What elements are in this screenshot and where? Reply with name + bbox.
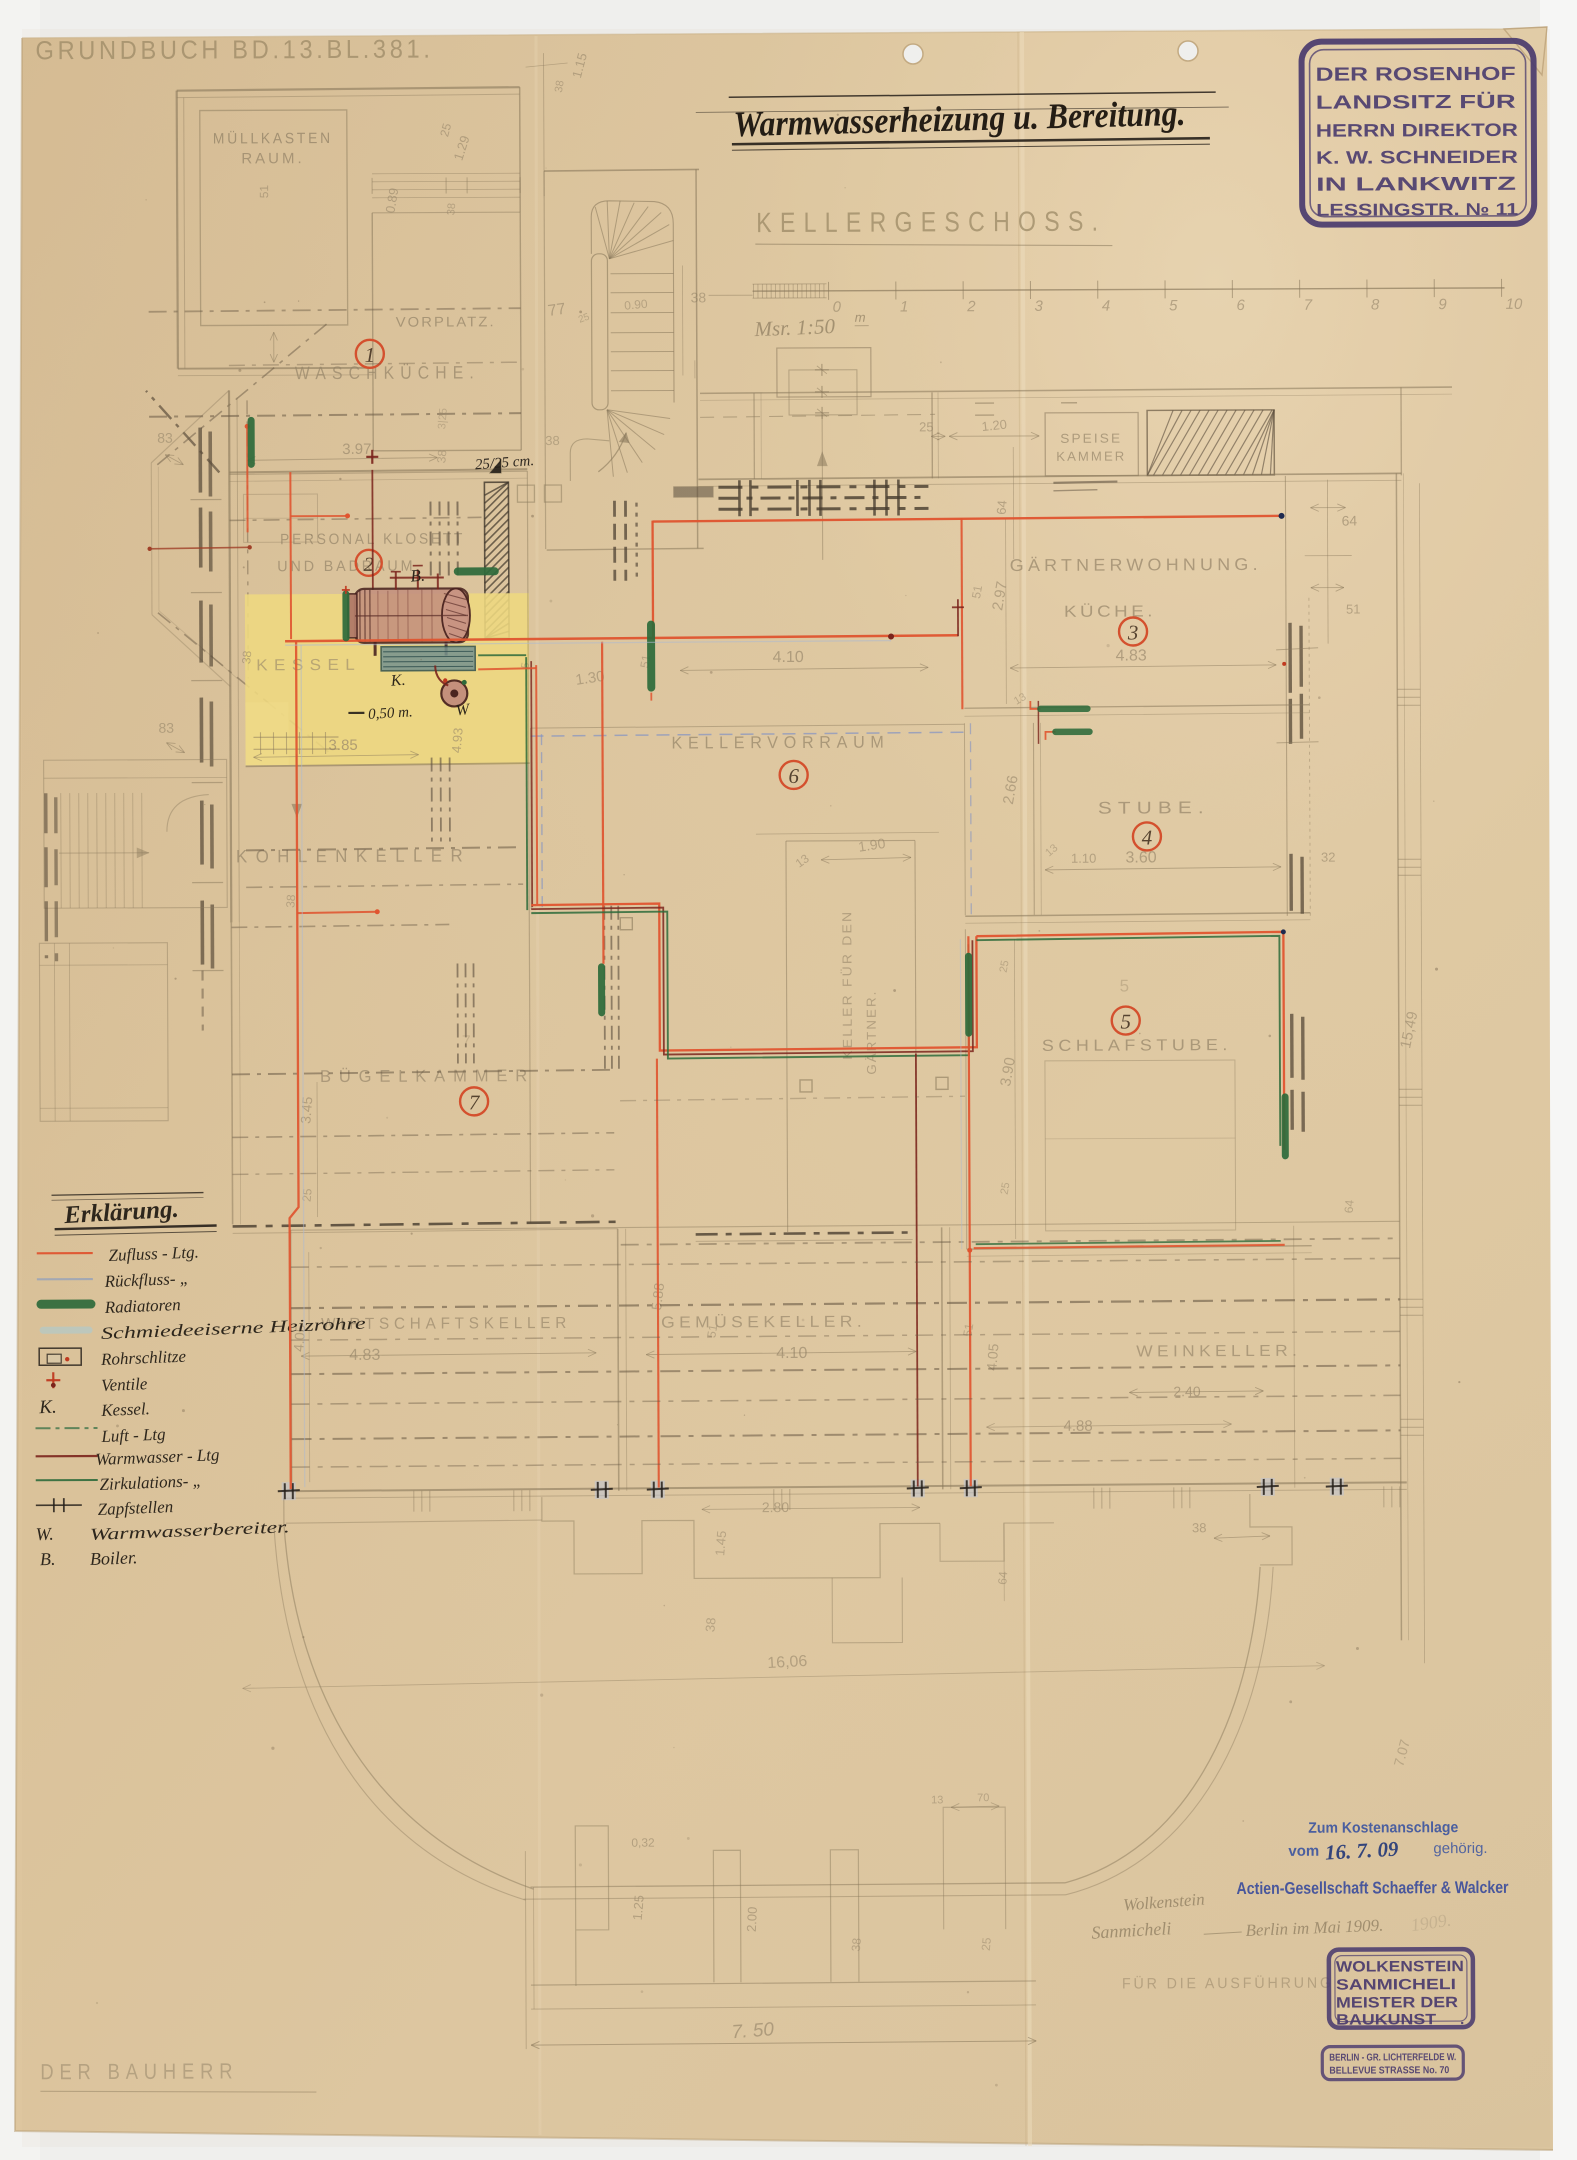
svg-text:0,32: 0,32: [631, 1836, 655, 1850]
svg-text:KAMMER: KAMMER: [1056, 449, 1126, 464]
svg-text:25: 25: [919, 419, 934, 434]
svg-text:16. 7. 09: 16. 7. 09: [1324, 1837, 1399, 1865]
svg-text:Rohrschlitze: Rohrschlitze: [100, 1347, 187, 1369]
svg-text:2.80: 2.80: [762, 1499, 790, 1515]
svg-text:3.85: 3.85: [328, 737, 357, 754]
svg-text:5: 5: [1169, 297, 1178, 314]
svg-text:4: 4: [1102, 298, 1110, 315]
svg-text:MÜLLKASTEN: MÜLLKASTEN: [213, 129, 333, 148]
svg-text:RAUM.: RAUM.: [241, 150, 304, 167]
svg-text:4: 4: [1142, 825, 1153, 849]
svg-text:Zirkulations- „: Zirkulations- „: [99, 1471, 202, 1494]
svg-text:Ventile: Ventile: [101, 1374, 148, 1395]
svg-text:38: 38: [434, 449, 449, 464]
svg-text:vom: vom: [1288, 1843, 1319, 1860]
svg-text:BÜGELKAMMER: BÜGELKAMMER: [320, 1066, 535, 1086]
svg-text:KELLER FÜR DEN: KELLER FÜR DEN: [839, 910, 855, 1060]
svg-text:K. W. SCHNEIDER: K. W. SCHNEIDER: [1316, 147, 1518, 168]
svg-text:51: 51: [1346, 602, 1361, 617]
svg-text:GEMÜSEKELLER.: GEMÜSEKELLER.: [661, 1313, 866, 1332]
svg-text:0,50 m.: 0,50 m.: [368, 704, 413, 723]
svg-text:51: 51: [257, 185, 271, 199]
svg-text:3: 3: [1127, 620, 1139, 644]
svg-text:0.90: 0.90: [624, 297, 649, 313]
svg-text:16,06: 16,06: [767, 1653, 808, 1672]
svg-text:GÄRTNER.: GÄRTNER.: [864, 990, 879, 1075]
svg-text:VORPLATZ.: VORPLATZ.: [396, 313, 496, 329]
svg-text:38: 38: [445, 203, 458, 216]
svg-text:2.00: 2.00: [744, 1906, 760, 1932]
svg-text:2: 2: [966, 298, 976, 315]
svg-text:38: 38: [849, 1937, 864, 1952]
svg-text:GÄRTNERWOHNUNG.: GÄRTNERWOHNUNG.: [1010, 555, 1262, 575]
svg-text:7. 50: 7. 50: [731, 2019, 775, 2043]
svg-text:3.45: 3.45: [297, 1096, 315, 1125]
svg-text:1.45: 1.45: [712, 1530, 729, 1556]
svg-text:38: 38: [702, 1617, 718, 1633]
svg-text:25: 25: [300, 1188, 315, 1203]
svg-text:8: 8: [1371, 296, 1380, 313]
svg-text:B.: B.: [39, 1549, 55, 1570]
svg-text:3.60: 3.60: [1125, 849, 1156, 866]
svg-text:51: 51: [969, 584, 985, 600]
svg-text:LESSINGSTR. № 11: LESSINGSTR. № 11: [1316, 200, 1518, 220]
svg-text:3.97: 3.97: [342, 441, 371, 458]
svg-text:K.: K.: [38, 1397, 57, 1419]
svg-text:BERLIN - GR. LICHTERFELDE W.: BERLIN - GR. LICHTERFELDE W.: [1329, 2052, 1456, 2064]
svg-text:gehörig.: gehörig.: [1433, 1840, 1487, 1857]
svg-text:SCHLAFSTUBE.: SCHLAFSTUBE.: [1042, 1037, 1232, 1055]
svg-text:64: 64: [994, 500, 1010, 516]
svg-text:UND BADRAUM.: UND BADRAUM.: [277, 558, 422, 576]
svg-text:83: 83: [157, 430, 173, 446]
svg-text:KESSEL: KESSEL: [256, 657, 361, 674]
svg-text:38: 38: [239, 650, 254, 665]
svg-text:6: 6: [788, 764, 799, 788]
svg-text:m: m: [855, 310, 866, 325]
svg-text:IN LANKWITZ: IN LANKWITZ: [1316, 174, 1517, 196]
svg-text:10: 10: [1506, 296, 1523, 313]
svg-text:SANMICHELI: SANMICHELI: [1336, 1976, 1456, 1994]
svg-text:38: 38: [691, 289, 707, 305]
svg-text:32: 32: [1321, 850, 1336, 865]
svg-text:K.: K.: [389, 672, 406, 690]
svg-text:WOLKENSTEIN: WOLKENSTEIN: [1336, 1958, 1464, 1976]
svg-text:6: 6: [1236, 297, 1245, 314]
svg-text:Zum Kostenanschlage: Zum Kostenanschlage: [1308, 1819, 1458, 1837]
svg-text:KELLERGESCHOSS.: KELLERGESCHOSS.: [756, 206, 1106, 239]
svg-text:64: 64: [1342, 513, 1358, 529]
svg-text:SPEISE: SPEISE: [1060, 431, 1122, 446]
svg-text:Rückfluss- „: Rückfluss- „: [103, 1269, 189, 1291]
svg-text:25: 25: [999, 1181, 1013, 1195]
svg-text:Zufluss - Ltg.: Zufluss - Ltg.: [108, 1242, 199, 1265]
svg-text:BAUKUNST: BAUKUNST: [1336, 2011, 1436, 2028]
svg-text:Actien-Gesellschaft Schaeffer: Actien-Gesellschaft Schaeffer & Walcker: [1236, 1878, 1508, 1898]
svg-text:Boiler.: Boiler.: [89, 1547, 137, 1569]
svg-text:70: 70: [977, 1792, 989, 1804]
svg-text:64: 64: [995, 1571, 1010, 1586]
svg-text:1.25: 1.25: [630, 1894, 647, 1920]
svg-text:77: 77: [547, 301, 567, 320]
svg-text:64: 64: [1342, 1199, 1357, 1214]
svg-text:1.10: 1.10: [1071, 851, 1096, 866]
svg-text:WEINKELLER.: WEINKELLER.: [1136, 1343, 1301, 1361]
svg-text:Radiatoren: Radiatoren: [103, 1295, 181, 1317]
svg-text:3|25: 3|25: [436, 408, 450, 430]
svg-text:9: 9: [1438, 296, 1447, 313]
svg-text:83: 83: [158, 720, 174, 736]
svg-text:BELLEVUE STRASSE No. 70: BELLEVUE STRASSE No. 70: [1329, 2065, 1449, 2077]
svg-text:Msr. 1:50: Msr. 1:50: [753, 314, 836, 341]
svg-text:4.10: 4.10: [773, 649, 804, 666]
svg-text:38: 38: [545, 433, 560, 448]
svg-text:GRUNDBUCH BD.13.BL.381.: GRUNDBUCH BD.13.BL.381.: [35, 34, 433, 66]
svg-text:STUBE.: STUBE.: [1098, 798, 1210, 817]
svg-text:38: 38: [1192, 1520, 1207, 1535]
svg-text:4.83: 4.83: [1116, 647, 1147, 664]
svg-text:FÜR DIE AUSFÜHRUNG: FÜR DIE AUSFÜHRUNG: [1122, 1974, 1334, 1993]
svg-text:DER BAUHERR: DER BAUHERR: [40, 2058, 238, 2084]
svg-text:25: 25: [998, 959, 1012, 973]
svg-text:5: 5: [1120, 1010, 1131, 1034]
svg-text:MEISTER DER: MEISTER DER: [1336, 1994, 1458, 2012]
svg-text:4.93: 4.93: [449, 727, 466, 753]
svg-text:KELLERVORRAUM: KELLERVORRAUM: [671, 733, 889, 753]
svg-text:KÜCHE.: KÜCHE.: [1064, 602, 1156, 620]
svg-text:Zapfstellen: Zapfstellen: [97, 1497, 173, 1519]
svg-text:WASCHKÜCHE.: WASCHKÜCHE.: [295, 362, 480, 383]
svg-text:38: 38: [553, 79, 567, 93]
svg-text:3: 3: [1034, 298, 1043, 315]
svg-text:Kessel.: Kessel.: [100, 1399, 150, 1420]
svg-text:1.20: 1.20: [981, 416, 1008, 434]
svg-text:DER ROSENHOF: DER ROSENHOF: [1316, 64, 1516, 86]
svg-text:.: .: [1460, 2011, 1464, 2028]
svg-text:B.: B.: [410, 566, 426, 586]
svg-text:13: 13: [931, 1794, 943, 1806]
svg-text:7: 7: [1304, 297, 1313, 314]
svg-text:7: 7: [469, 1090, 481, 1114]
svg-text:4.05: 4.05: [983, 1343, 1001, 1372]
svg-text:1: 1: [900, 298, 908, 315]
svg-text:W.: W.: [35, 1524, 54, 1545]
svg-text:5: 5: [1120, 977, 1130, 996]
svg-text:Luft - Ltg: Luft - Ltg: [100, 1424, 166, 1446]
svg-text:25: 25: [979, 1937, 994, 1952]
svg-text:HERRN DIREKTOR: HERRN DIREKTOR: [1316, 120, 1518, 141]
svg-text:LANDSITZ FÜR: LANDSITZ FÜR: [1316, 92, 1516, 114]
